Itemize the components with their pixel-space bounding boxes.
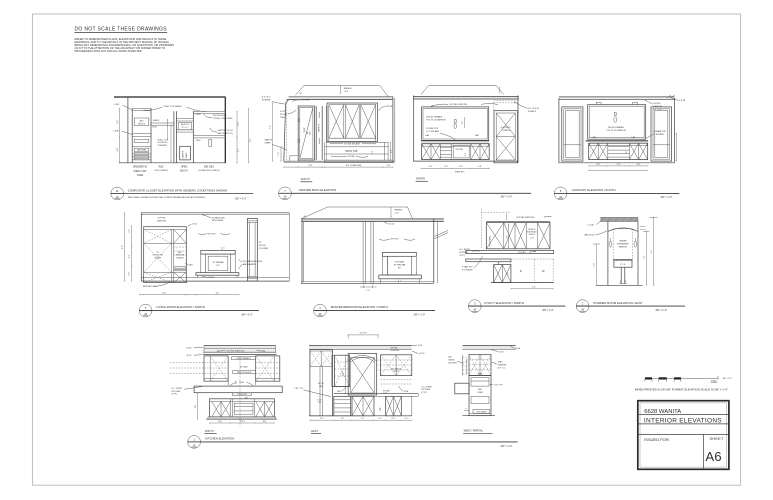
svg-text:LAV: LAV — [632, 136, 636, 139]
svg-text:7'-6": 7'-6" — [250, 138, 252, 142]
svg-text:SEE PLANS / DETAILS FOR ACTUAL: SEE PLANS / DETAILS FOR ACTUAL CONDITION… — [128, 196, 206, 199]
svg-text:GYP BD: GYP BD — [207, 277, 215, 279]
svg-text:EAST: EAST — [311, 430, 318, 433]
svg-text:F.P.: F.P. — [216, 265, 219, 267]
svg-text:PLYWOOD: PLYWOOD — [158, 142, 168, 144]
svg-text:1 1/2": 1 1/2" — [317, 399, 322, 401]
svg-text:3'-1": 3'-1" — [238, 148, 240, 152]
svg-text:LAV: LAV — [475, 134, 479, 137]
svg-text:BLW W/ ADJ: BLW W/ ADJ — [527, 231, 537, 234]
svg-text:6'-0": 6'-0" — [216, 293, 220, 295]
svg-text:SHLV'G: SHLV'G — [180, 171, 188, 173]
svg-text:MASTER BATH ELEVATION: MASTER BATH ELEVATION — [299, 188, 336, 192]
svg-text:FIXTURE: FIXTURE — [422, 389, 431, 391]
svg-text:3/8" = 1'-0": 3/8" = 1'-0" — [542, 309, 554, 312]
svg-text:COOKTOP: COOKTOP — [237, 394, 247, 396]
svg-text:8'-0" CLG IN: 8'-0" CLG IN — [528, 108, 540, 110]
svg-text:GYP BD FURR DN: GYP BD FURR DN — [227, 350, 245, 352]
svg-text:3/8" = 1'-0": 3/8" = 1'-0" — [655, 309, 667, 312]
svg-text:L.S52: L.S52 — [114, 104, 120, 106]
svg-text:ADJ: ADJ — [178, 251, 181, 254]
svg-text:SPACE: SPACE — [185, 152, 188, 159]
svg-text:MASTER BEDROOM ELEVATION / NOR: MASTER BEDROOM ELEVATION / NORTH — [331, 305, 388, 309]
svg-text:(BOOKS): (BOOKS) — [449, 362, 457, 364]
svg-text:12" O.C.: 12" O.C. — [181, 127, 188, 129]
svg-text:TOWELS: TOWELS — [502, 130, 511, 132]
svg-text:LS 48: LS 48 — [186, 347, 192, 349]
svg-text:OPTIONAL: OPTIONAL — [395, 261, 405, 264]
svg-text:IN SHWR: IN SHWR — [262, 99, 271, 101]
svg-text:HOLD 1 1/2: HOLD 1 1/2 — [158, 139, 168, 141]
svg-text:GYP BD: GYP BD — [391, 347, 399, 349]
svg-text:DW: DW — [380, 407, 382, 410]
svg-text:INTERIOR ELEVATIONS: INTERIOR ELEVATIONS — [644, 417, 722, 424]
svg-text:LAV: LAV — [592, 136, 596, 139]
svg-text:3'-10": 3'-10" — [162, 293, 167, 295]
svg-text:2'-0"+: 2'-0"+ — [391, 418, 395, 420]
svg-text:MIRROR: MIRROR — [619, 246, 628, 248]
svg-text:DOORS TO: DOORS TO — [501, 127, 512, 129]
svg-text:ADJ SHLVS: ADJ SHLVS — [391, 367, 401, 370]
svg-text:3'-4": 3'-4" — [236, 380, 238, 384]
svg-text:STONE TOP: STONE TOP — [426, 128, 439, 130]
svg-text:STONE: STONE — [348, 156, 356, 158]
svg-text:APPLIED BASE: APPLIED BASE — [143, 285, 159, 288]
svg-text:U.C. STRIP: U.C. STRIP — [459, 249, 470, 251]
svg-text:TEMP GL: TEMP GL — [319, 123, 321, 133]
svg-text:COMPOSITE CLOSET ELEVATION: COMPOSITE CLOSET ELEVATION WITH GENERIC … — [128, 188, 227, 192]
svg-text:60°: 60° — [304, 216, 307, 218]
svg-text:FURR DN: FURR DN — [391, 350, 400, 352]
svg-text:CONT TOP SHELF: CONT TOP SHELF — [163, 106, 182, 108]
svg-text:TOWELS: TOWELS — [528, 111, 537, 113]
svg-text:(TYP): (TYP) — [172, 394, 178, 396]
svg-text:U.C. STRIP: U.C. STRIP — [172, 388, 183, 390]
svg-text:48" VAH: 48" VAH — [240, 365, 248, 368]
svg-text:2'-2": 2'-2" — [129, 229, 131, 233]
svg-text:1'-6": 1'-6" — [626, 151, 628, 155]
svg-text:DIVIDERS: DIVIDERS — [498, 365, 508, 367]
svg-text:ADJ: ADJ — [140, 119, 144, 122]
svg-text:(TYP): (TYP) — [422, 392, 428, 394]
svg-text:ROD: ROD — [196, 114, 201, 116]
svg-text:WHEN PRINTED IN 24"x36" FORMAT: WHEN PRINTED IN 24"x36" FORMAT ELEVATION… — [635, 387, 728, 391]
svg-text:SHLV'G @: SHLV'G @ — [181, 124, 190, 126]
svg-text:SEAT IN: SEAT IN — [265, 139, 273, 142]
svg-text:OPEN: OPEN — [181, 167, 188, 169]
svg-text:GYP BD: GYP BD — [208, 233, 216, 235]
svg-text:DRW, ST. HOOD: DRW, ST. HOOD — [237, 372, 252, 374]
svg-text:GL: GL — [307, 132, 309, 135]
svg-text:RAISED: RAISED — [344, 87, 352, 90]
svg-text:4'-0": 4'-0" — [507, 235, 509, 239]
svg-text:D: D — [520, 270, 522, 273]
svg-text:ROUTED EDGE: ROUTED EDGE — [213, 115, 228, 117]
svg-text:L.S 48: L.S 48 — [588, 224, 595, 226]
svg-text:DO NOT SCALE THESE DRAWING: DO NOT SCALE THESE DRAWINGS — [75, 26, 168, 32]
svg-text:STONE: STONE — [280, 114, 287, 116]
svg-text:(TYP): (TYP) — [394, 371, 399, 373]
svg-text:8'-0": 8'-0" — [122, 245, 124, 249]
svg-text:2'-6": 2'-6" — [459, 166, 463, 168]
svg-text:FIXTURE: FIXTURE — [459, 252, 468, 254]
svg-text:5'-6": 5'-6" — [594, 262, 596, 266]
svg-text:ROD: ROD — [196, 140, 201, 142]
svg-text:GYP BD FURR DN: GYP BD FURR DN — [449, 104, 467, 106]
svg-text:TYP ALL CONDITIONS: TYP ALL CONDITIONS — [213, 117, 233, 120]
svg-text:POT DRWR: POT DRWR — [477, 411, 487, 413]
svg-text:SLIDES: SLIDES — [154, 258, 161, 260]
svg-text:FIXED PANEL: FIXED PANEL — [488, 236, 491, 247]
svg-text:SHLVS: SHLVS — [449, 360, 456, 362]
svg-text:GYP BD: GYP BD — [386, 106, 394, 108]
svg-text:GYP BD: GYP BD — [158, 218, 166, 220]
svg-text:DBL: DBL — [478, 389, 482, 391]
svg-text:3'-0" F.V: 3'-0" F.V — [359, 332, 367, 334]
svg-text:SEE PLAN: SEE PLAN — [137, 149, 146, 152]
svg-text:STONE SPLASH: STONE SPLASH — [344, 143, 360, 146]
svg-text:TRIM: TRIM — [280, 117, 285, 119]
svg-text:GYP BD: GYP BD — [518, 252, 526, 254]
svg-text:LAVATORY ELEVATION / SOUTH: LAVATORY ELEVATION / SOUTH — [572, 188, 616, 192]
svg-text:SOUTH: SOUTH — [301, 178, 310, 181]
svg-text:3'-4": 3'-4" — [129, 254, 131, 258]
svg-text:4'-0": 4'-0" — [117, 147, 119, 151]
svg-text:POWDER ROOM ELEVATION / EAST: POWDER ROOM ELEVATION / EAST — [593, 301, 643, 305]
svg-text:1 1/2" TYP: 1 1/2" TYP — [494, 384, 504, 386]
svg-text:LIVING ROOM ELEVATION / NORTH: LIVING ROOM ELEVATION / NORTH — [157, 305, 206, 309]
svg-text:OVEN: OVEN — [477, 392, 483, 394]
svg-text:SHELF UNIT: SHELF UNIT — [133, 171, 147, 173]
svg-text:3/8" = 1'-0": 3/8" = 1'-0" — [501, 445, 513, 448]
svg-text:8'-0" CLG: 8'-0" CLG — [262, 97, 271, 99]
svg-text:1'-6": 1'-6" — [387, 165, 391, 167]
svg-text:MAX SPAN (TYP): MAX SPAN (TYP) — [218, 132, 233, 135]
svg-text:TILE: TILE — [404, 391, 409, 393]
svg-text:2'-2"+: 2'-2"+ — [320, 418, 324, 420]
svg-text:CLG: CLG — [395, 213, 400, 215]
svg-text:LS 52: LS 52 — [389, 224, 395, 226]
svg-text:WOOD: WOOD — [259, 245, 266, 247]
svg-text:9'-0": 9'-0" — [651, 249, 653, 253]
svg-text:MOULDING: MOULDING — [212, 220, 224, 222]
svg-text:GYP BD: GYP BD — [456, 149, 464, 151]
svg-text:DBL R&S: DBL R&S — [204, 167, 214, 169]
svg-text:POL PL GL MIRROR: POL PL GL MIRROR — [606, 130, 626, 132]
svg-text:& 4" SPLASH: & 4" SPLASH — [426, 130, 439, 133]
svg-text:GYP BD: GYP BD — [391, 239, 399, 241]
svg-text:60°: 60° — [300, 93, 303, 95]
svg-text:2'-0"+: 2'-0"+ — [405, 418, 409, 420]
svg-text:WOOD FRAMED: WOOD FRAMED — [426, 116, 443, 119]
svg-text:3/8" = 1'-0": 3/8" = 1'-0" — [661, 196, 673, 199]
svg-text:34" B.I.: 34" B.I. — [318, 383, 325, 385]
svg-text:WEST / PARTIAL: WEST / PARTIAL — [464, 430, 484, 433]
svg-text:3'-5": 3'-5" — [238, 122, 240, 126]
svg-text:LS 48: LS 48 — [515, 348, 521, 350]
svg-text:1'-0": 1'-0" — [366, 290, 370, 292]
svg-text:L.S 48: L.S 48 — [679, 100, 686, 102]
svg-text:1 1/2" TYP: 1 1/2" TYP — [294, 388, 304, 390]
svg-text:ARCH CLG: ARCH CLG — [585, 233, 596, 236]
svg-text:4"x12": 4"x12" — [280, 111, 286, 113]
svg-text:DRESSER W/: DRESSER W/ — [133, 167, 148, 169]
svg-text:GYP BD: GYP BD — [653, 103, 661, 105]
svg-text:3'-0": 3'-0" — [637, 164, 641, 166]
svg-text:2'-6": 2'-6" — [478, 166, 482, 168]
svg-text:STONE: STONE — [383, 390, 390, 392]
svg-text:HAMPER: HAMPER — [182, 150, 185, 158]
svg-text:@ 3" O.C.: @ 3" O.C. — [498, 367, 507, 369]
svg-text:LS 48: LS 48 — [417, 345, 423, 347]
svg-text:GYP BD FURR DN: GYP BD FURR DN — [516, 217, 534, 219]
svg-text:KITCHEN ELEVATION: KITCHEN ELEVATION — [205, 437, 234, 441]
svg-text:COLUMN: COLUMN — [259, 248, 269, 250]
svg-text:DOORS ON: DOORS ON — [152, 255, 163, 257]
svg-text:LS 52: LS 52 — [499, 351, 505, 353]
svg-text:3/8" = 1'-0": 3/8" = 1'-0" — [414, 313, 426, 316]
svg-text:RAISED: RAISED — [395, 209, 403, 212]
svg-text:2'-6": 2'-6" — [507, 272, 509, 275]
svg-text:2'-6": 2'-6" — [465, 152, 467, 156]
svg-text:NORTH: NORTH — [416, 178, 425, 181]
svg-text:FURR DN: FURR DN — [157, 221, 167, 223]
svg-text:2'-6": 2'-6" — [391, 149, 393, 153]
svg-text:1'-3": 1'-3" — [361, 418, 365, 420]
svg-text:KNEE SPC: KNEE SPC — [455, 171, 465, 173]
svg-text:FURNISHED: FURNISHED — [617, 243, 629, 245]
svg-text:SHWR: SHWR — [265, 142, 272, 144]
svg-text:4'-0": 4'-0" — [343, 372, 345, 376]
svg-text:3/8" = 1'-0": 3/8" = 1'-0" — [723, 378, 733, 380]
svg-text:PROCEEDING WITH ANY AND ALL WO: PROCEEDING WITH ANY AND ALL WORK AFFECTE… — [75, 49, 143, 53]
svg-text:LS 52: LS 52 — [419, 353, 425, 355]
svg-text:4'-0": 4'-0" — [462, 120, 464, 124]
svg-text:DIVIDERS: DIVIDERS — [158, 145, 168, 147]
svg-text:SPACES: SPACES — [176, 257, 184, 260]
svg-text:SHLVS W/: SHLVS W/ — [176, 255, 185, 257]
svg-text:UTILITY ELEVATION / NORTH: UTILITY ELEVATION / NORTH — [484, 301, 524, 305]
svg-text:L.S48: L.S48 — [113, 130, 119, 132]
svg-text:SHLV'G: SHLV'G — [529, 234, 536, 236]
svg-text:FIXTURE: FIXTURE — [172, 391, 181, 393]
svg-text:TILE: TILE — [239, 382, 244, 384]
svg-text:WHPL TUB: WHPL TUB — [346, 151, 358, 153]
svg-text:RFD: RFD — [319, 386, 324, 388]
svg-text:2'-6": 2'-6" — [530, 238, 534, 240]
svg-text:3'-0": 3'-0" — [378, 418, 382, 420]
svg-text:(DOUBLE ROD & SHELF): (DOUBLE ROD & SHELF) — [198, 170, 219, 172]
svg-text:DAG: DAG — [189, 263, 194, 266]
svg-text:GYP BD: GYP BD — [302, 100, 310, 102]
svg-text:CORIAN TOP: CORIAN TOP — [653, 130, 666, 133]
svg-text:SHEET: SHEET — [710, 437, 725, 441]
svg-text:3'-6"±: 3'-6"± — [240, 421, 245, 423]
svg-text:2'-6": 2'-6" — [129, 272, 131, 276]
svg-text:TRAY: TRAY — [498, 361, 504, 364]
svg-text:ROD: ROD — [153, 127, 158, 129]
svg-text:F.P.: F.P. — [398, 268, 401, 270]
svg-text:LS 52: LS 52 — [192, 223, 198, 225]
svg-text:SHLV'G: SHLV'G — [138, 123, 145, 125]
svg-text:2'-6": 2'-6" — [429, 166, 433, 168]
svg-text:A6: A6 — [705, 449, 721, 464]
svg-text:3'-6": 3'-6" — [309, 165, 313, 167]
svg-text:1'-6": 1'-6" — [444, 166, 448, 168]
svg-text:(TYP): (TYP) — [459, 255, 465, 257]
svg-text:7'-6": 7'-6" — [270, 125, 272, 129]
svg-text:OWNER: OWNER — [619, 240, 627, 242]
svg-text:5'-2": 5'-2" — [532, 287, 536, 289]
svg-text:1'-6": 1'-6" — [278, 152, 280, 156]
svg-text:LAV: LAV — [425, 134, 429, 137]
svg-text:1'-4": 1'-4" — [372, 150, 374, 154]
svg-text:STONE SURROUND: STONE SURROUND — [243, 261, 263, 263]
svg-text:CLG: CLG — [344, 91, 349, 93]
svg-text:OVER: OVER — [137, 175, 144, 177]
svg-text:LS 52: LS 52 — [186, 355, 192, 357]
svg-text:12": 12" — [259, 242, 262, 244]
svg-text:FIXED PANELS: FIXED PANELS — [236, 357, 251, 360]
svg-text:3/8" = 1'-0": 3/8" = 1'-0" — [235, 198, 247, 201]
svg-text:R&S: R&S — [159, 167, 164, 169]
svg-text:8'-0" PLATFORM: 8'-0" PLATFORM — [346, 164, 362, 167]
svg-text:42" PREFAB: 42" PREFAB — [213, 261, 224, 264]
svg-text:SHELF: SHELF — [153, 120, 160, 122]
svg-text:U.C. STRIP: U.C. STRIP — [422, 386, 433, 388]
svg-text:6628 WANITA: 6628 WANITA — [644, 409, 681, 415]
svg-text:3'-0": 3'-0" — [195, 404, 197, 408]
svg-text:3/8" = 1'-0": 3/8" = 1'-0" — [501, 196, 513, 199]
svg-text:6" SPLASH: 6" SPLASH — [462, 269, 473, 272]
svg-text:SUPPORT @ 3'-0": SUPPORT @ 3'-0" — [218, 130, 234, 132]
svg-text:7'-4": 7'-4" — [644, 255, 646, 259]
svg-text:(ROD & SHELF): (ROD & SHELF) — [154, 170, 168, 172]
svg-text:P LAM TOP: P LAM TOP — [462, 266, 473, 269]
svg-text:ISSUED FOR:: ISSUED FOR: — [644, 437, 670, 442]
svg-text:WOOD FRAMED: WOOD FRAMED — [608, 126, 625, 129]
svg-text:4" C.S.: 4" C.S. — [620, 264, 626, 266]
svg-text:2'-6": 2'-6" — [617, 164, 621, 166]
svg-text:3'-6": 3'-6" — [117, 120, 119, 124]
svg-text:SOUTH: SOUTH — [205, 430, 214, 433]
svg-text:TILE: TILE — [337, 391, 342, 393]
svg-text:TEMP: TEMP — [304, 127, 306, 133]
svg-text:3/8" = 1'-0": 3/8" = 1'-0" — [241, 313, 253, 316]
svg-text:3'-0": 3'-0" — [596, 164, 600, 166]
svg-text:SCHEDULED: SCHEDULED — [212, 217, 225, 219]
svg-text:36" PRE-FAB: 36" PRE-FAB — [394, 264, 406, 267]
svg-text:1'-3": 1'-3" — [341, 418, 345, 420]
svg-text:ADJ: ADJ — [449, 356, 453, 359]
svg-text:POL PL GL MIRROR: POL PL GL MIRROR — [426, 120, 446, 122]
